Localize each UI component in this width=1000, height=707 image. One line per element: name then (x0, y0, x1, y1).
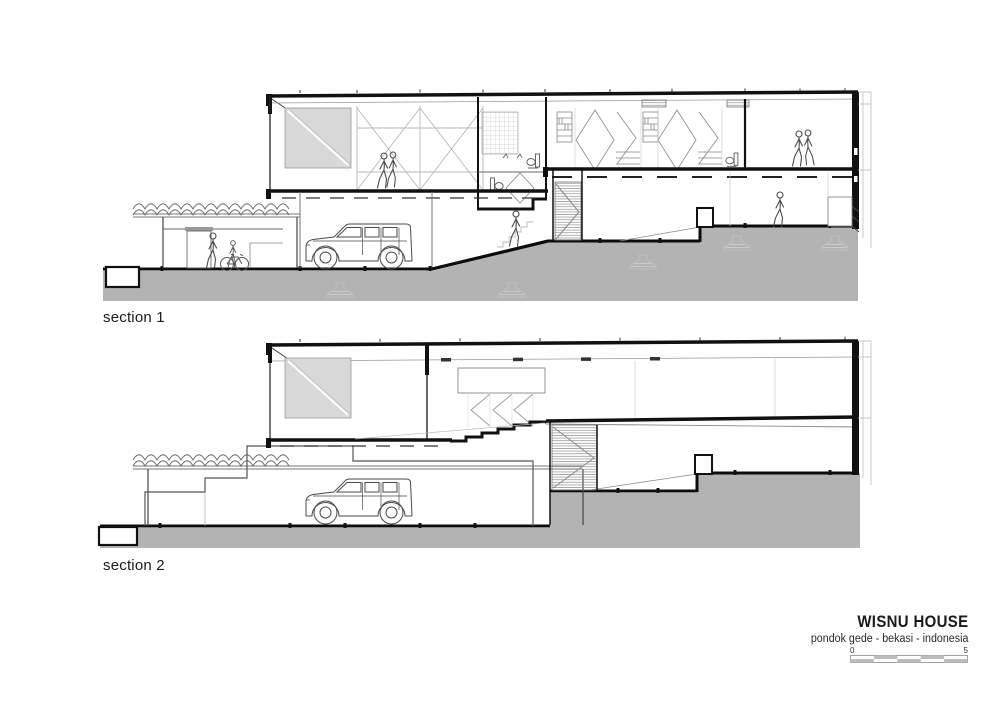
person-icon (510, 211, 520, 246)
section2-drain-box (99, 527, 137, 545)
section1-sliding-panels (357, 106, 483, 190)
section2-vegetation (133, 455, 289, 466)
person-icon (805, 130, 815, 165)
scale-start-label: 0 (850, 647, 854, 655)
person-icon (378, 153, 388, 188)
car-icon (306, 479, 412, 524)
section1-vegetation (133, 204, 289, 215)
section1-extension-lines (858, 92, 871, 248)
section2-ground (100, 473, 860, 548)
drawing-canvas: section 1 section 2 WISNU HOUSE pondok g… (0, 0, 1000, 707)
scale-end-label: 5 (964, 647, 968, 655)
section1-couple-mid (378, 152, 397, 188)
section1-terrace-lines (730, 172, 828, 226)
section1-pergola (133, 214, 300, 268)
section2-roof (266, 337, 858, 362)
section2-drawing (99, 337, 871, 548)
section1-step-box (697, 208, 713, 227)
person-icon (387, 152, 397, 187)
section1-couple-right (793, 130, 815, 166)
tile-wall (482, 112, 518, 154)
section2-room-lines (635, 359, 775, 417)
wardrobe-diamond (576, 110, 614, 170)
section2-step-box (695, 455, 712, 474)
section1-label: section 1 (103, 309, 165, 326)
title-block: WISNU HOUSE pondok gede - bekasi - indon… (799, 612, 968, 663)
sections-drawing (0, 0, 1000, 610)
section2-left-wall (268, 343, 272, 439)
section1-wardrobes (557, 108, 722, 170)
section1-cyclists (207, 233, 249, 271)
section1-entry-steps (497, 222, 533, 247)
section1-stair (553, 170, 582, 241)
section1-skylight (285, 108, 351, 168)
section2-ramp-line (590, 474, 697, 490)
wardrobe-chevron (699, 112, 718, 164)
scale-bar-graphic (850, 655, 968, 663)
toilet-icon (726, 153, 738, 166)
section1-left-wall (268, 94, 272, 191)
toilet-icon (527, 154, 540, 168)
section1-garden-walls (163, 227, 283, 268)
person-icon (207, 233, 217, 268)
section2-skylight (285, 358, 351, 418)
section2-label: section 2 (103, 557, 165, 574)
section1-terrace-door (828, 197, 852, 226)
section1-roof (266, 88, 858, 112)
project-title: WISNU HOUSE (819, 612, 968, 632)
section1-drawing (103, 88, 871, 301)
project-location: pondok gede - bekasi - indonesia (810, 633, 968, 645)
section1-drain-box (106, 267, 139, 287)
section2-right-wall (852, 341, 859, 475)
scale-bar: 0 5 (850, 647, 968, 663)
person-icon (774, 192, 784, 227)
car-icon (306, 224, 412, 269)
vent-grille (642, 100, 666, 107)
section1-ground (103, 227, 858, 301)
shelf-unit (643, 112, 658, 142)
section2-extension-lines (858, 341, 871, 485)
wardrobe-chevron (617, 112, 636, 164)
wardrobe-diamond (658, 110, 696, 170)
shelf-unit (557, 112, 572, 142)
plant-marks (503, 154, 522, 158)
person-icon (793, 131, 803, 166)
